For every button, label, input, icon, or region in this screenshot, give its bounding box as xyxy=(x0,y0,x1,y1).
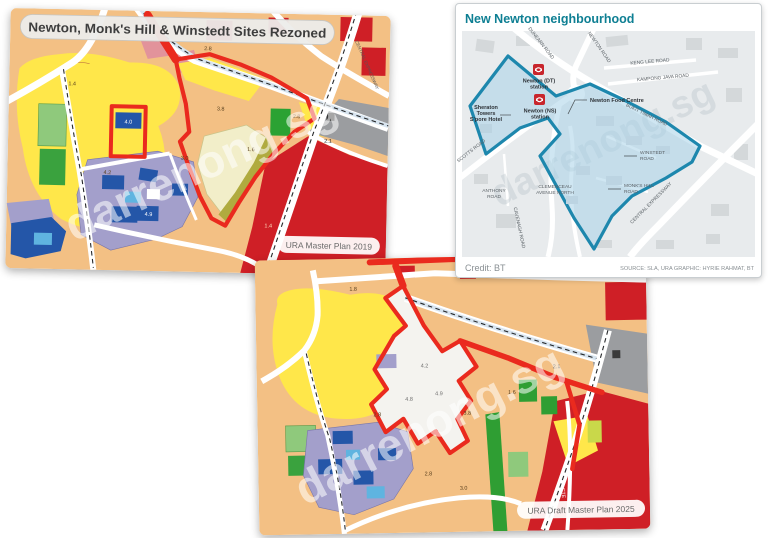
badge-pill-2025: URA Draft Master Plan 2025 xyxy=(517,500,645,519)
food-centre-label: Newton Food Centre xyxy=(590,98,644,104)
svg-text:1.4: 1.4 xyxy=(264,223,272,229)
svg-text:MONK'S HILL: MONK'S HILL xyxy=(624,183,654,189)
zone-yellowgreen-parcel xyxy=(587,420,601,442)
map-collage: 1.4 2.8 4.0 4.2 3.8 1.6 2.8 1.4 4.9 2.1 … xyxy=(0,0,768,538)
svg-text:4.0: 4.0 xyxy=(125,119,133,125)
panel-ura-draft-master-plan-2025: 1.8 4.2 4.9 4.8 2.8 3.8 2.1 2.8 3.0 1.6 … xyxy=(255,254,651,536)
newton-dt-station xyxy=(533,64,544,75)
badge-pill-2019: URA Master Plan 2019 xyxy=(278,236,380,255)
newton-ns-station xyxy=(534,94,545,105)
svg-text:3.8: 3.8 xyxy=(217,106,225,112)
badge-label-2025: URA Draft Master Plan 2025 xyxy=(527,504,635,516)
zone-lightblue-parcel xyxy=(367,486,385,498)
svg-text:ANTHONY: ANTHONY xyxy=(482,188,506,194)
svg-text:WINSTEDT: WINSTEDT xyxy=(640,150,665,156)
cte-road-label: CTE xyxy=(559,488,566,499)
svg-text:2.8: 2.8 xyxy=(204,46,212,52)
zone-park-green xyxy=(39,149,66,186)
bt-map: New Newton neighbourhood xyxy=(456,4,761,277)
svg-text:ROAD: ROAD xyxy=(640,156,654,162)
panel-ura-master-plan-2019: 1.4 2.8 4.0 4.2 3.8 1.6 2.8 1.4 4.9 2.1 … xyxy=(5,8,390,276)
bt-credit: Credit: BT xyxy=(465,263,506,273)
svg-text:2.8: 2.8 xyxy=(373,412,381,418)
panel-bt-newton-graphic: New Newton neighbourhood xyxy=(455,3,762,278)
svg-text:S'pore Hotel: S'pore Hotel xyxy=(470,117,503,123)
bt-source: SOURCE: SLA, URA GRAPHIC: HYRIE RAHMAT, … xyxy=(620,266,754,272)
zoning-map-2025: 1.8 4.2 4.9 4.8 2.8 3.8 2.1 2.8 3.0 1.6 … xyxy=(255,254,651,536)
badge-label-2019: URA Master Plan 2019 xyxy=(286,240,373,252)
building-dot xyxy=(612,350,620,358)
newton-dt-label-2: station xyxy=(530,85,549,91)
svg-text:ROAD: ROAD xyxy=(487,194,501,200)
svg-text:2.8: 2.8 xyxy=(425,471,433,477)
svg-text:4.8: 4.8 xyxy=(405,397,413,403)
svg-text:3.0: 3.0 xyxy=(460,486,468,492)
newton-ns-label-2: station xyxy=(531,115,550,121)
svg-text:CLEMENCEAU: CLEMENCEAU xyxy=(538,184,572,190)
zone-lightblue-parcel xyxy=(34,233,52,245)
svg-text:1.4: 1.4 xyxy=(68,81,76,87)
svg-text:1.8: 1.8 xyxy=(349,287,357,293)
svg-text:4.2: 4.2 xyxy=(103,170,111,176)
bt-map-title: New Newton neighbourhood xyxy=(465,12,634,26)
svg-text:4.2: 4.2 xyxy=(421,363,429,369)
zone-park-lightgreen xyxy=(508,452,528,477)
svg-text:2.1: 2.1 xyxy=(324,139,332,145)
svg-text:AVENUE NORTH: AVENUE NORTH xyxy=(536,190,574,196)
zone-red-parcel xyxy=(605,282,647,321)
zone-park-lightgreen xyxy=(38,104,67,147)
zone-park-green xyxy=(541,396,557,414)
svg-text:ROAD: ROAD xyxy=(624,189,638,195)
zoning-map-2019: 1.4 2.8 4.0 4.2 3.8 1.6 2.8 1.4 4.9 2.1 … xyxy=(5,8,390,276)
